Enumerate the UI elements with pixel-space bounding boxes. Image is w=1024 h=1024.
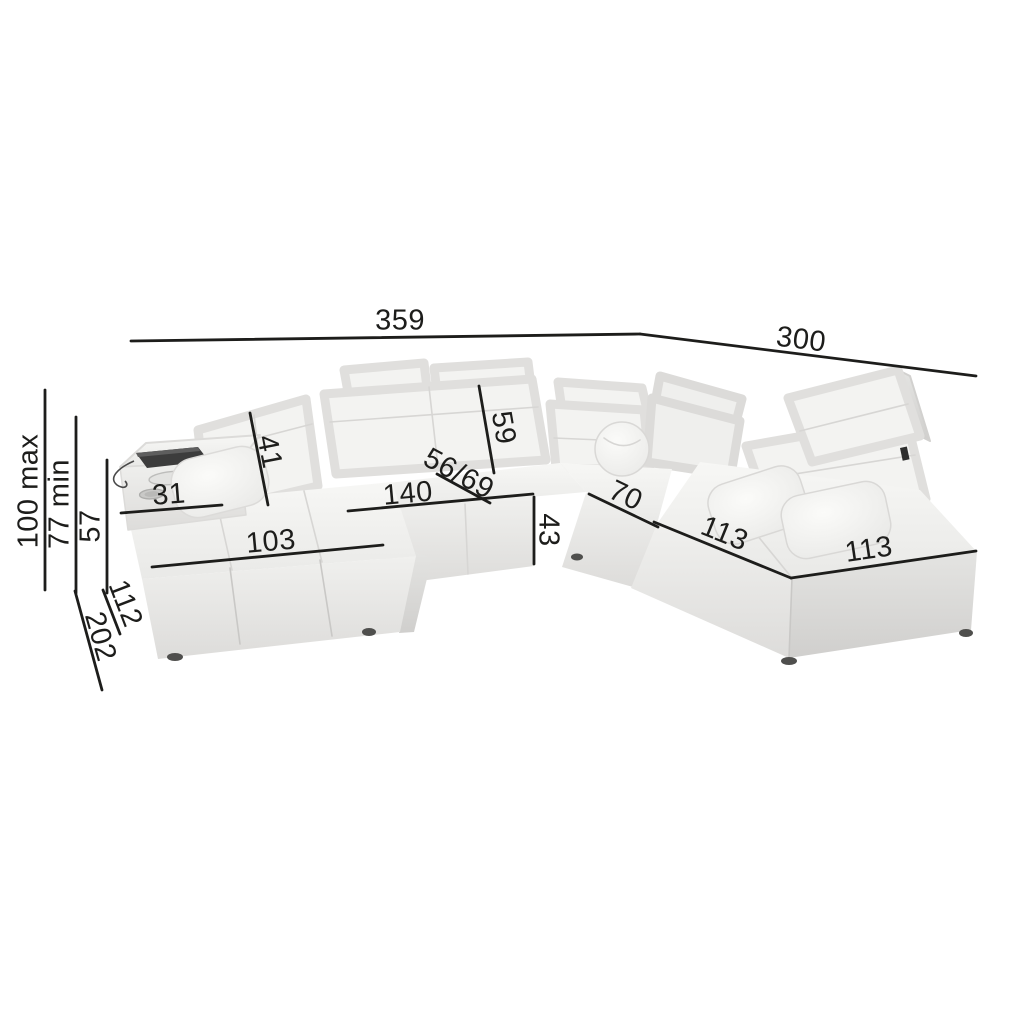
product-dimension-diagram: 359 300 100 max 77 min 57 112 202 41 59 … [0,0,1024,1024]
label-armrest-height: 57 [75,509,107,542]
sofa-leg [167,653,183,661]
bolster-pillow [595,422,649,476]
label-center-backrest: 59 [485,409,522,447]
label-total-width: 359 [375,305,425,337]
label-center-seat: 140 [382,475,435,511]
label-height-max: 100 max [13,434,45,549]
sofa-leg [571,554,583,561]
sofa-dimension-drawing: 359 300 100 max 77 min 57 112 202 41 59 … [0,0,1024,1024]
sofa-leg [781,657,797,665]
label-chaise-width: 103 [245,523,298,559]
label-end-seat: 113 [843,530,895,569]
label-seat-height: 43 [532,513,564,546]
label-left-backrest: 41 [250,432,288,471]
label-total-depth: 300 [774,321,828,359]
sofa-leg [959,629,973,637]
sofa-leg [362,628,376,636]
label-height-min: 77 min [44,459,76,549]
label-console-width: 31 [151,477,187,512]
